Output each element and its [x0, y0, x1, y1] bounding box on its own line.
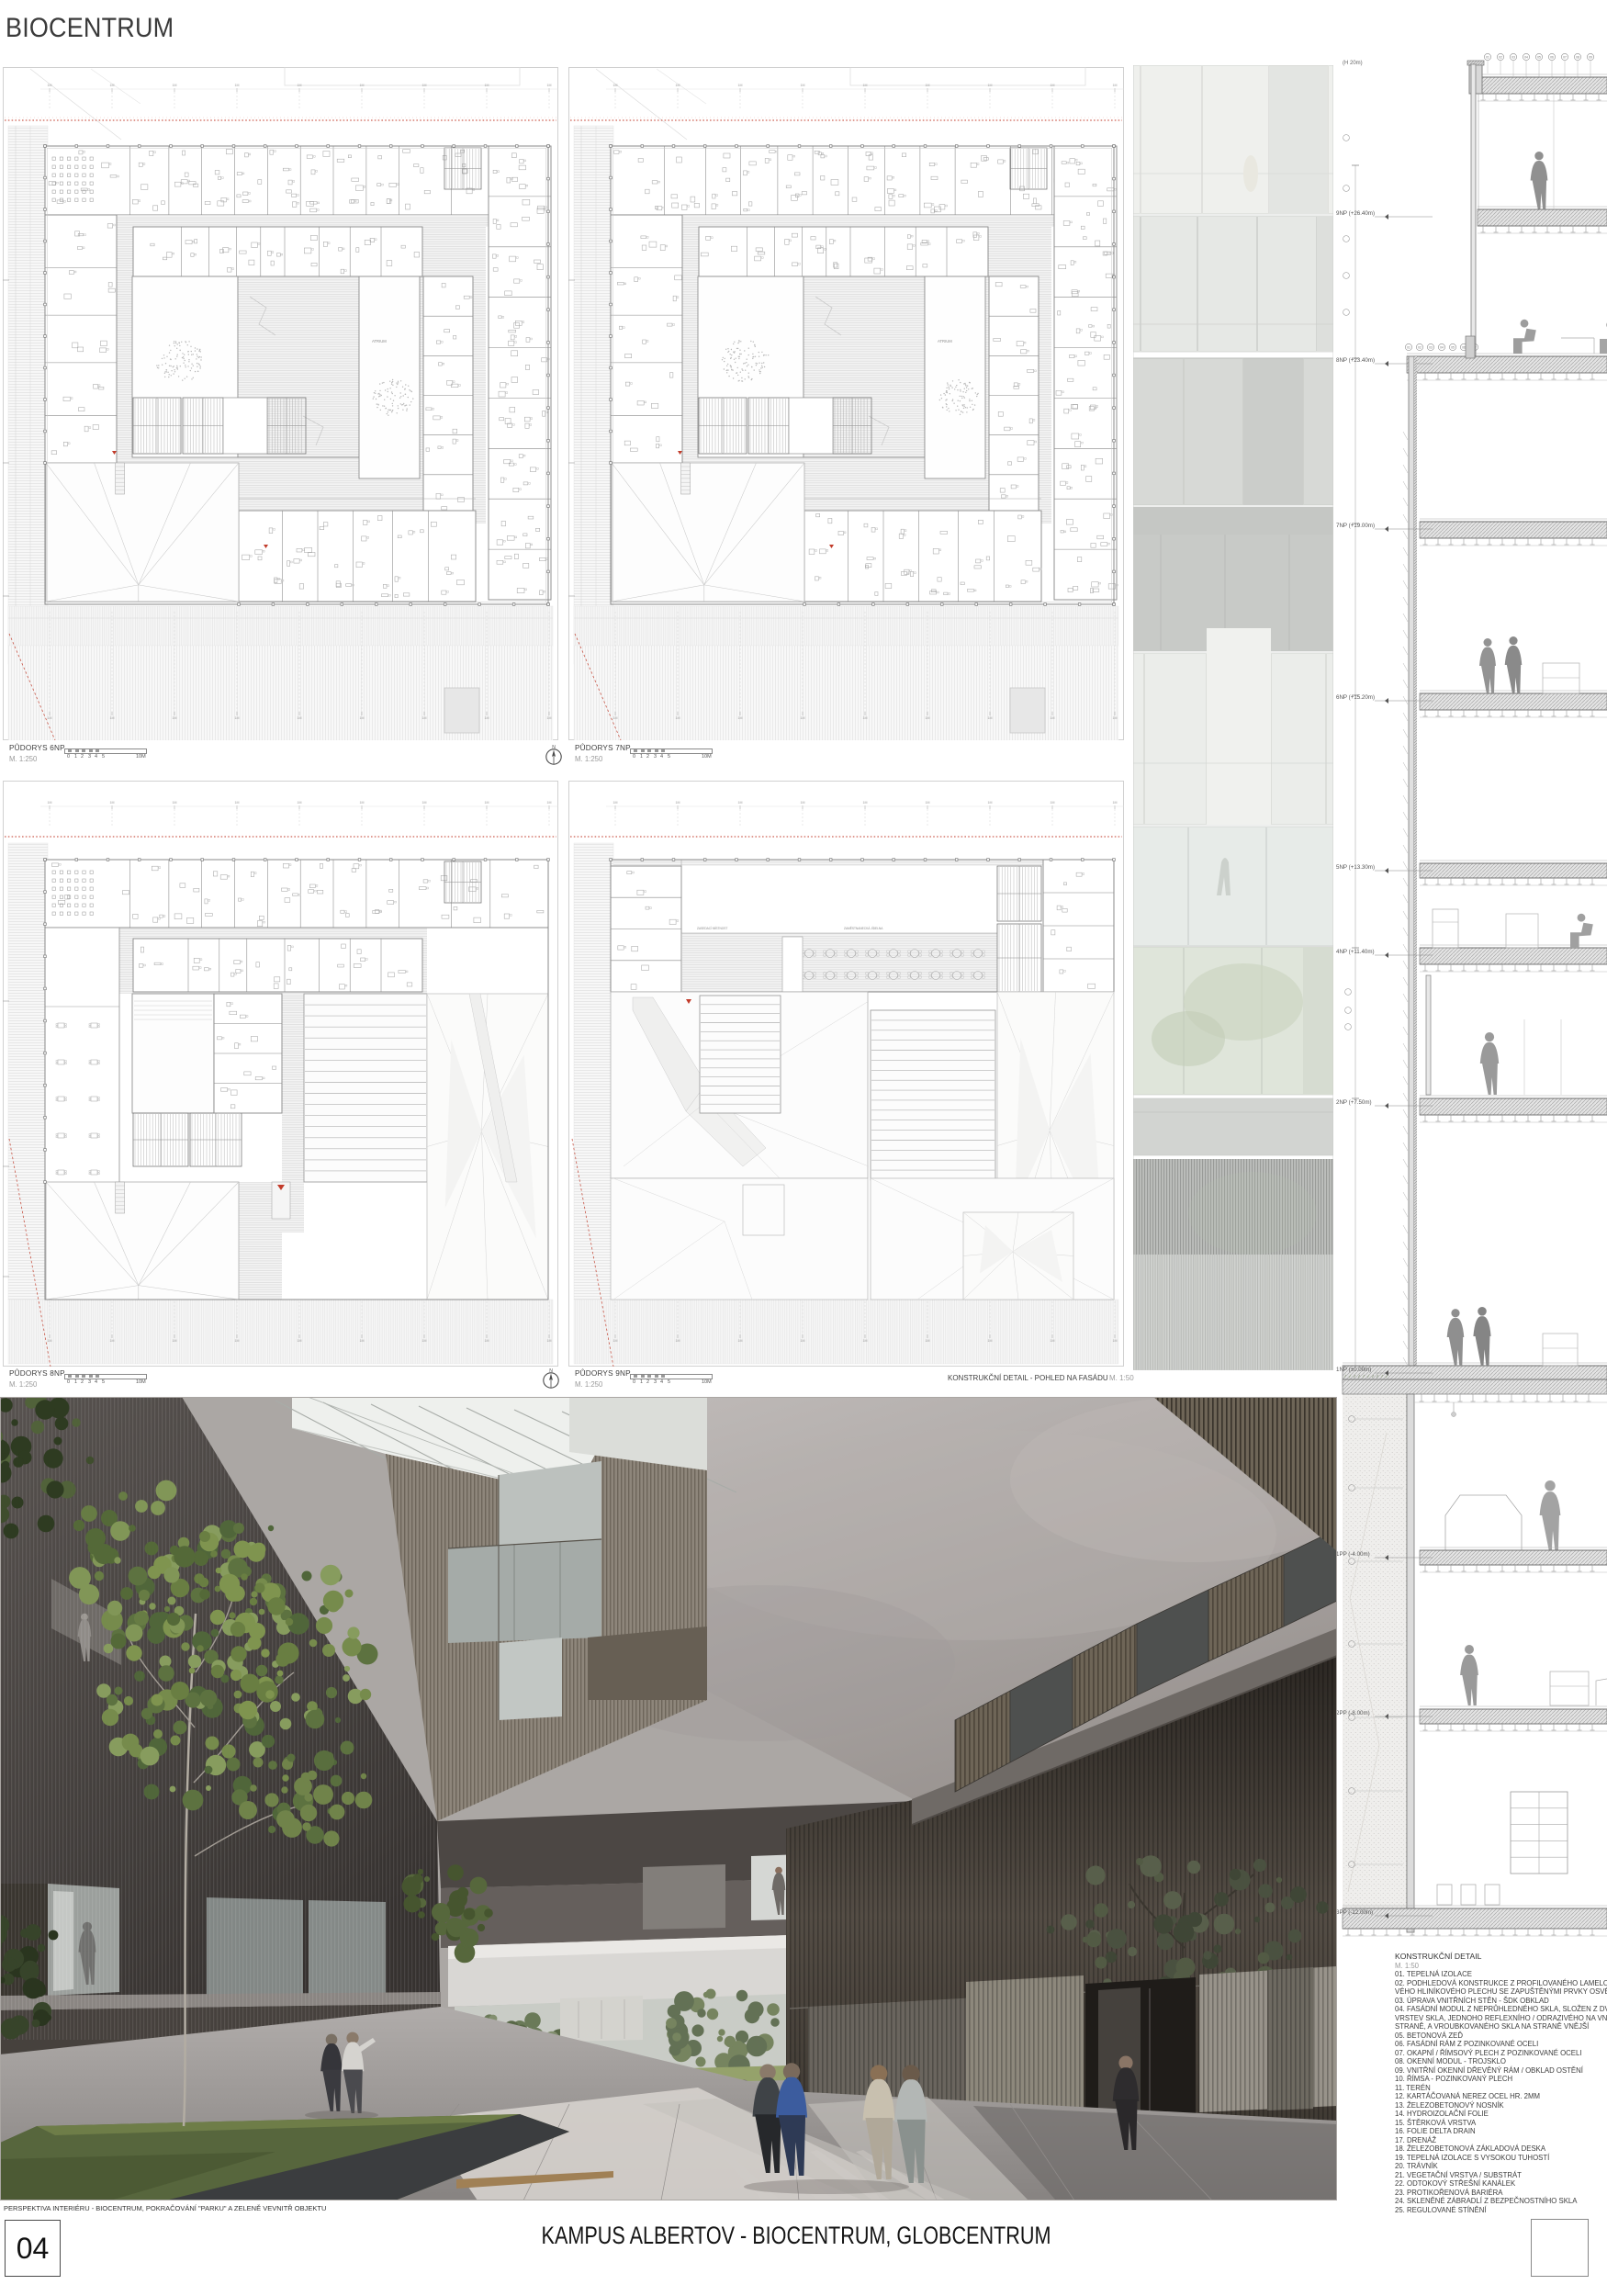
- svg-text:1M: 1M: [173, 716, 177, 720]
- svg-text:1M: 1M: [298, 716, 302, 720]
- svg-text:1M: 1M: [613, 1339, 618, 1343]
- svg-text:1M: 1M: [485, 1339, 489, 1343]
- svg-text:01: 01: [1486, 56, 1489, 60]
- svg-text:1M: 1M: [863, 1339, 868, 1343]
- svg-text:ZASEDACÍ MÍSTNOST: ZASEDACÍ MÍSTNOST: [697, 927, 727, 930]
- svg-text:1M: 1M: [422, 84, 427, 87]
- svg-text:1M: 1M: [48, 801, 52, 805]
- svg-text:1M: 1M: [547, 716, 552, 720]
- svg-text:1M: 1M: [235, 801, 240, 805]
- svg-text:1M: 1M: [988, 716, 993, 720]
- svg-text:1M: 1M: [801, 716, 805, 720]
- svg-text:04: 04: [1440, 346, 1444, 350]
- svg-text:7NP (+19.00m): 7NP (+19.00m): [1336, 523, 1375, 529]
- svg-text:1M: 1M: [926, 84, 930, 87]
- svg-text:1M: 1M: [1051, 801, 1055, 805]
- svg-text:1M: 1M: [360, 1339, 365, 1343]
- svg-text:1M: 1M: [1051, 1339, 1055, 1343]
- svg-text:4NP (+11.40m): 4NP (+11.40m): [1336, 949, 1375, 955]
- svg-text:02: 02: [1499, 56, 1502, 60]
- svg-text:1M: 1M: [547, 84, 552, 87]
- svg-text:1M: 1M: [988, 84, 993, 87]
- svg-text:1M: 1M: [48, 1339, 52, 1343]
- svg-text:1M: 1M: [110, 716, 115, 720]
- svg-text:1M: 1M: [676, 1339, 680, 1343]
- svg-text:ZAMĚSTNANECKÁ JÍDELNA: ZAMĚSTNANECKÁ JÍDELNA: [844, 926, 883, 930]
- svg-text:1M: 1M: [863, 84, 868, 87]
- svg-text:1M: 1M: [801, 1339, 805, 1343]
- svg-text:07: 07: [1563, 56, 1567, 60]
- svg-text:1M: 1M: [1051, 716, 1055, 720]
- svg-text:ATRIUM: ATRIUM: [938, 339, 952, 343]
- svg-text:1M: 1M: [1113, 1339, 1118, 1343]
- svg-text:08: 08: [1576, 56, 1579, 60]
- svg-text:05: 05: [1451, 346, 1455, 350]
- svg-text:1M: 1M: [360, 84, 365, 87]
- svg-text:1M: 1M: [613, 84, 618, 87]
- svg-text:1M: 1M: [801, 801, 805, 805]
- svg-text:06: 06: [1462, 346, 1466, 350]
- svg-text:1M: 1M: [360, 716, 365, 720]
- svg-text:1M: 1M: [1051, 84, 1055, 87]
- svg-text:6NP (+15.20m): 6NP (+15.20m): [1336, 694, 1375, 701]
- svg-text:1M: 1M: [48, 716, 52, 720]
- svg-text:1M: 1M: [926, 801, 930, 805]
- svg-text:1M: 1M: [173, 801, 177, 805]
- svg-text:1M: 1M: [676, 84, 680, 87]
- svg-text:1M: 1M: [298, 84, 302, 87]
- svg-text:1M: 1M: [738, 1339, 743, 1343]
- svg-text:8NP (+23.40m): 8NP (+23.40m): [1336, 357, 1375, 364]
- svg-text:1M: 1M: [988, 801, 993, 805]
- svg-text:1M: 1M: [485, 801, 489, 805]
- svg-text:1M: 1M: [1113, 84, 1118, 87]
- svg-text:1M: 1M: [988, 1339, 993, 1343]
- svg-text:1M: 1M: [863, 801, 868, 805]
- svg-text:1M: 1M: [422, 716, 427, 720]
- svg-text:1M: 1M: [110, 801, 115, 805]
- svg-text:1M: 1M: [863, 716, 868, 720]
- svg-text:1M: 1M: [738, 84, 743, 87]
- svg-text:1M: 1M: [422, 1339, 427, 1343]
- svg-text:1M: 1M: [173, 84, 177, 87]
- svg-text:1M: 1M: [235, 1339, 240, 1343]
- svg-text:ATRIUM: ATRIUM: [372, 339, 387, 343]
- svg-text:1M: 1M: [298, 801, 302, 805]
- svg-text:2NP (+7.50m): 2NP (+7.50m): [1336, 1099, 1372, 1106]
- svg-text:03: 03: [1429, 346, 1433, 350]
- svg-text:1M: 1M: [110, 84, 115, 87]
- svg-text:1M: 1M: [485, 716, 489, 720]
- svg-text:1M: 1M: [422, 801, 427, 805]
- svg-text:1NP (±0.00m): 1NP (±0.00m): [1336, 1367, 1371, 1373]
- svg-text:1M: 1M: [801, 84, 805, 87]
- svg-text:1M: 1M: [298, 1339, 302, 1343]
- svg-text:1M: 1M: [738, 716, 743, 720]
- svg-text:04: 04: [1524, 56, 1528, 60]
- svg-text:1M: 1M: [738, 801, 743, 805]
- svg-text:1M: 1M: [235, 716, 240, 720]
- svg-text:2PP (-8.00m): 2PP (-8.00m): [1336, 1710, 1370, 1716]
- svg-text:1M: 1M: [676, 801, 680, 805]
- svg-text:1M: 1M: [485, 84, 489, 87]
- svg-text:1M: 1M: [1113, 716, 1118, 720]
- svg-text:1M: 1M: [613, 801, 618, 805]
- svg-text:1M: 1M: [547, 801, 552, 805]
- svg-text:1M: 1M: [360, 801, 365, 805]
- svg-text:1M: 1M: [235, 84, 240, 87]
- svg-text:1M: 1M: [926, 1339, 930, 1343]
- svg-text:5NP (+13.30m): 5NP (+13.30m): [1336, 864, 1375, 871]
- svg-text:1M: 1M: [613, 716, 618, 720]
- svg-text:06: 06: [1550, 56, 1554, 60]
- svg-text:1M: 1M: [547, 1339, 552, 1343]
- svg-text:05: 05: [1537, 56, 1541, 60]
- svg-text:3PP (-12.00m): 3PP (-12.00m): [1336, 1909, 1373, 1916]
- svg-text:01: 01: [1407, 346, 1410, 350]
- svg-text:1M: 1M: [110, 1339, 115, 1343]
- svg-text:1M: 1M: [926, 716, 930, 720]
- svg-text:1M: 1M: [173, 1339, 177, 1343]
- svg-text:02: 02: [1418, 346, 1422, 350]
- svg-text:03: 03: [1511, 56, 1515, 60]
- svg-text:09: 09: [1589, 56, 1592, 60]
- svg-text:1M: 1M: [676, 716, 680, 720]
- svg-text:1PP (-4.00m): 1PP (-4.00m): [1336, 1551, 1370, 1558]
- svg-text:(H 20m): (H 20m): [1343, 61, 1363, 66]
- svg-text:1M: 1M: [48, 84, 52, 87]
- svg-text:1M: 1M: [1113, 801, 1118, 805]
